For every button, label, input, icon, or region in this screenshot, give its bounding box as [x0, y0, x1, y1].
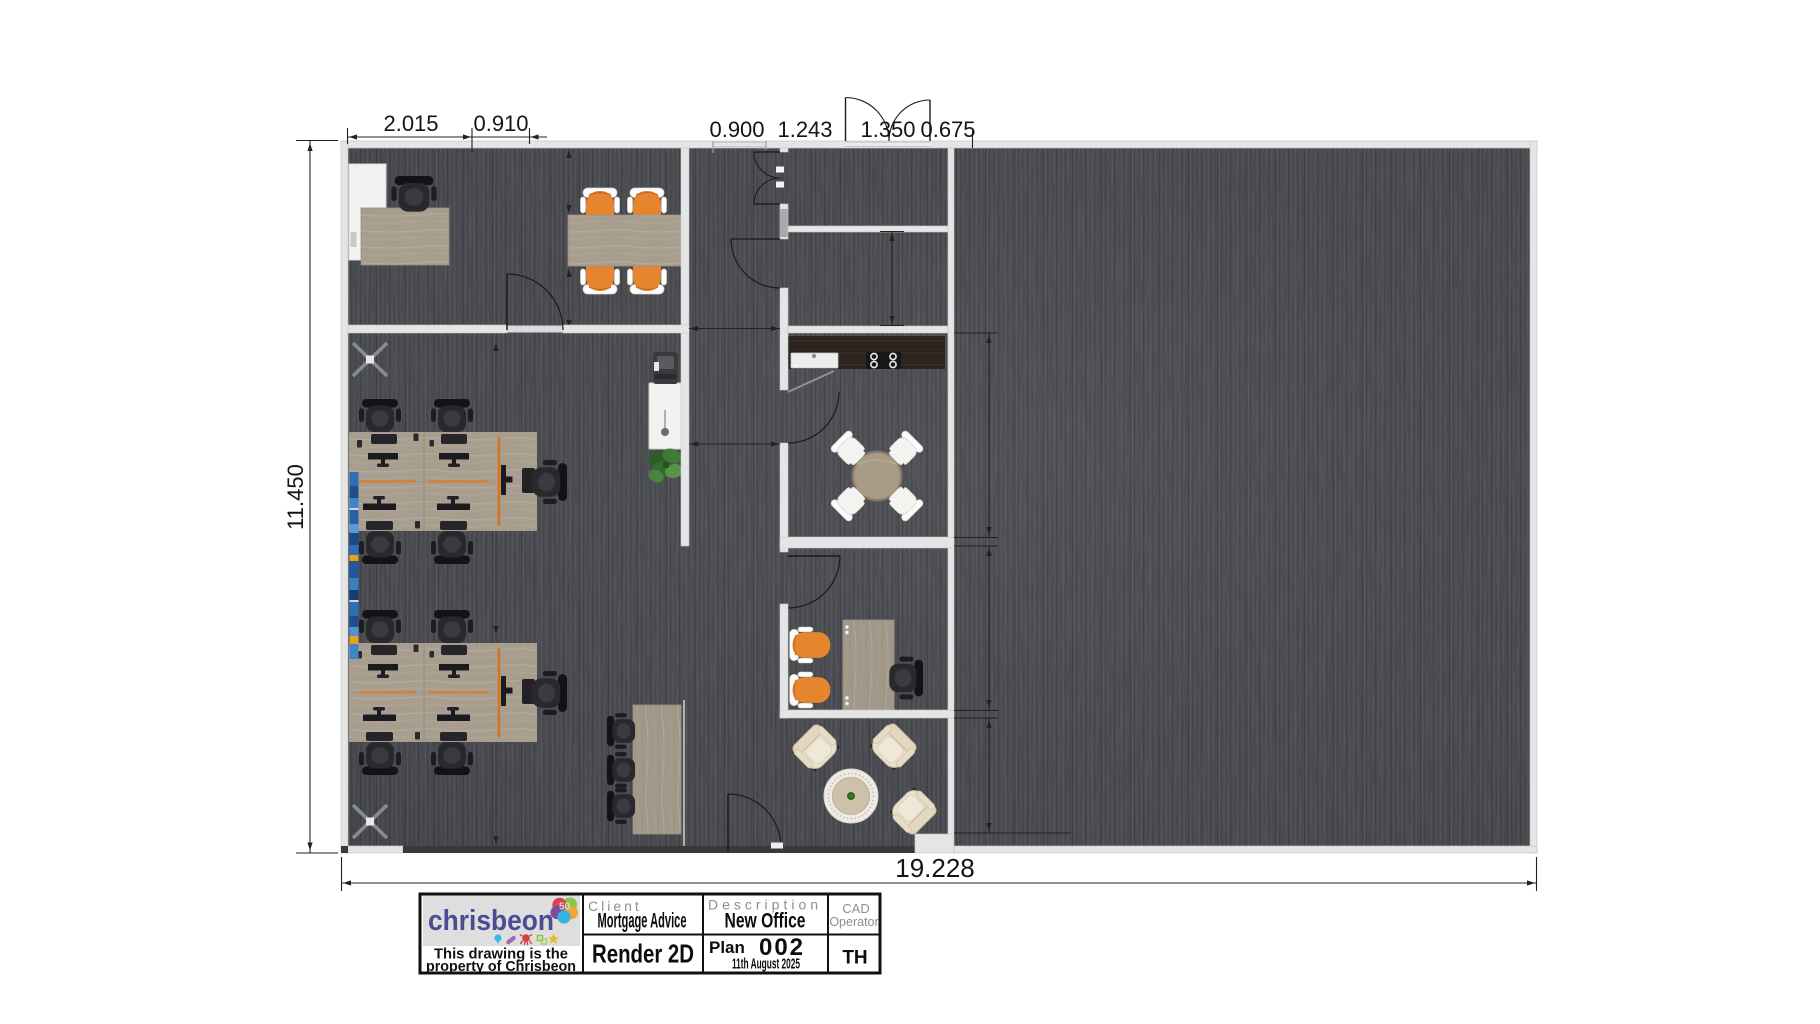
svg-text:Mortgage Advice: Mortgage Advice: [598, 910, 687, 933]
svg-text:Render 2D: Render 2D: [592, 939, 694, 969]
svg-text:0.900: 0.900: [709, 117, 764, 142]
svg-text:11.450: 11.450: [283, 464, 308, 530]
svg-text:11th August 2025: 11th August 2025: [732, 957, 800, 973]
svg-text:0.675: 0.675: [920, 117, 975, 142]
svg-text:50: 50: [559, 902, 571, 913]
svg-text:2.015: 2.015: [383, 111, 438, 136]
svg-text:1.350: 1.350: [860, 117, 915, 142]
svg-text:0.910: 0.910: [473, 111, 528, 136]
svg-text:chrisbeon: chrisbeon: [428, 905, 554, 937]
svg-text:New Office: New Office: [725, 910, 806, 933]
svg-text:Plan: Plan: [709, 938, 745, 957]
svg-text:Operator: Operator: [829, 915, 878, 929]
svg-text:TH: TH: [842, 948, 867, 969]
svg-text:19.228: 19.228: [895, 853, 975, 883]
svg-text:property of Chrisbeon: property of Chrisbeon: [426, 958, 576, 975]
svg-text:1.243: 1.243: [777, 117, 832, 142]
svg-text:CAD: CAD: [842, 901, 869, 916]
